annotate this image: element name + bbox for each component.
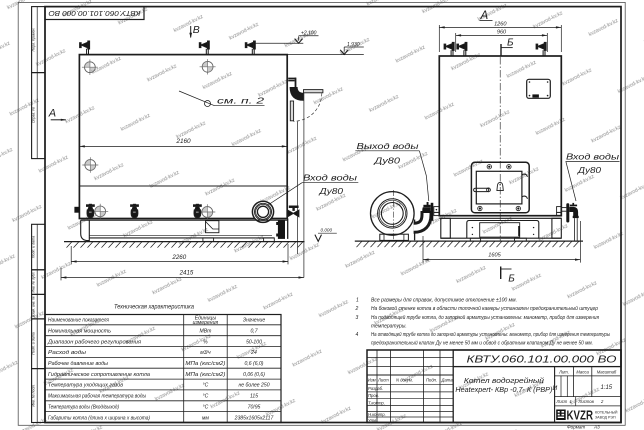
svg-text:1605: 1605	[488, 252, 501, 258]
svg-text:КОТЕЛЬНЫЙ: КОТЕЛЬНЫЙ	[595, 410, 618, 414]
svg-text:Пров.: Пров.	[368, 393, 379, 398]
svg-text:0.000: 0.000	[321, 228, 333, 233]
svg-text:Изм: Изм	[368, 378, 376, 383]
svg-text:N докум.: N докум.	[396, 378, 413, 383]
svg-text:измерения: измерения	[193, 320, 219, 326]
svg-text:2385х1605х2117: 2385х1605х2117	[234, 415, 274, 421]
svg-text:Ду80: Ду80	[577, 165, 601, 175]
svg-text:Б: Б	[507, 37, 514, 48]
svg-text:КВТУ.060.101.00.000 ВО: КВТУ.060.101.00.000 ВО	[48, 9, 140, 18]
svg-text:ЗАВОД РЭП: ЗАВОД РЭП	[595, 415, 616, 419]
svg-text:50-100: 50-100	[246, 339, 262, 345]
svg-text:Максимальная рабочая температу: Максимальная рабочая температура воды	[48, 394, 146, 400]
svg-text:предохранительный клапан Ду не: предохранительный клапан Ду не менее 50 …	[371, 340, 593, 347]
svg-text:1260: 1260	[494, 21, 507, 27]
svg-text:МПа (кгс/см2): МПа (кгс/см2)	[185, 361, 225, 367]
svg-text:Разраб.: Разраб.	[368, 386, 383, 391]
svg-text:Взам. инв. №: Взам. инв. №	[32, 296, 36, 317]
svg-text:Масса: Масса	[576, 370, 589, 375]
svg-text:0,06 (0,6): 0,06 (0,6)	[243, 372, 265, 378]
svg-text:Лист: Лист	[556, 399, 568, 404]
svg-text:В: В	[193, 24, 200, 36]
svg-text:1,930: 1,930	[347, 42, 360, 48]
svg-text:см. п. 2: см. п. 2	[217, 96, 264, 106]
svg-text:960: 960	[497, 29, 507, 35]
svg-text:2160: 2160	[175, 138, 191, 145]
svg-text:температуры.: температуры.	[371, 323, 407, 329]
svg-text:+2,100: +2,100	[301, 31, 317, 37]
svg-text:А: А	[48, 107, 56, 119]
svg-text:Техническая характеристика: Техническая характеристика	[114, 303, 195, 310]
svg-text:Б: Б	[508, 274, 515, 285]
svg-text:Вход воды: Вход воды	[566, 152, 620, 162]
svg-text:Выход воды: Выход воды	[357, 141, 420, 151]
svg-text:Значение: Значение	[243, 318, 266, 324]
svg-text:%: %	[203, 339, 208, 345]
svg-text:Вход воды: Вход воды	[303, 173, 358, 183]
svg-text:24: 24	[250, 350, 257, 356]
svg-text:Ду80: Ду80	[318, 186, 343, 196]
svg-text:Лит.: Лит.	[558, 370, 569, 375]
svg-text:Наименование показателя: Наименование показателя	[48, 318, 109, 324]
svg-text:не более 250: не более 250	[238, 383, 269, 389]
svg-text:Лист: Лист	[377, 378, 389, 383]
svg-text:Перв. примен.: Перв. примен.	[32, 28, 36, 52]
svg-text:2415: 2415	[179, 270, 194, 277]
svg-text:Подп.: Подп.	[426, 378, 437, 383]
svg-text:2: 2	[355, 306, 359, 312]
svg-text:Дата: Дата	[441, 378, 454, 383]
svg-text:мм: мм	[202, 415, 209, 421]
svg-text:Рабочее давление воды: Рабочее давление воды	[48, 361, 108, 367]
svg-text:Номинальная мощность: Номинальная мощность	[48, 329, 111, 335]
svg-text:3: 3	[356, 315, 359, 321]
svg-text:1:15: 1:15	[600, 385, 612, 391]
svg-text:Гидравлическое сопротивление к: Гидравлическое сопротивление котла	[48, 372, 150, 378]
svg-text:Котел водогрейный: Котел водогрейный	[464, 377, 544, 385]
svg-text:Листов: Листов	[578, 399, 595, 404]
svg-text:4: 4	[356, 332, 359, 338]
svg-text:70/95: 70/95	[248, 404, 261, 410]
svg-text:Диапазон рабочего регулировани: Диапазон рабочего регулирования	[47, 339, 141, 345]
svg-text:2260: 2260	[171, 254, 186, 261]
svg-text:Подп. и дата: Подп. и дата	[32, 236, 36, 259]
svg-text:115: 115	[250, 394, 258, 400]
svg-text:0,7: 0,7	[250, 329, 257, 335]
svg-text:Справ. №: Справ. №	[32, 107, 36, 123]
svg-text:На подводящей трубе котла, до: На подводящей трубе котла, до запорной а…	[371, 314, 599, 321]
svg-text:На отводящей трубе котла до за: На отводящей трубе котла до запорной арм…	[371, 331, 610, 338]
svg-text:Расход воды: Расход воды	[48, 350, 86, 356]
svg-text:1: 1	[570, 399, 572, 404]
svg-text:м3/ч: м3/ч	[200, 350, 211, 356]
svg-text:KVZR: KVZR	[567, 409, 594, 423]
svg-text:И: И	[552, 385, 557, 392]
svg-text:Подп. и дата: Подп. и дата	[32, 332, 36, 355]
svg-text:А: А	[480, 10, 489, 22]
svg-text:Утв.: Утв.	[368, 418, 378, 423]
svg-text:Инв. № подл.: Инв. № подл.	[32, 384, 36, 406]
svg-text:°С: °С	[203, 383, 209, 389]
svg-text:Heatexpert- КВр -0,7- К (РВР): Heatexpert- КВр -0,7- К (РВР)	[455, 387, 552, 394]
svg-text:Н.контр.: Н.контр.	[368, 412, 386, 417]
svg-text:КВТУ.060.101.00.000 ВО: КВТУ.060.101.00.000 ВО	[467, 354, 617, 366]
svg-text:МПа (кгс/см2): МПа (кгс/см2)	[185, 372, 225, 378]
svg-text:0,6 (6,0): 0,6 (6,0)	[245, 361, 264, 367]
svg-text:А3: А3	[593, 425, 600, 430]
svg-text:°С: °С	[203, 394, 209, 400]
svg-text:Температура воды (Вход/выход): Температура воды (Вход/выход)	[48, 404, 119, 410]
svg-text:Температура уходящих газов: Температура уходящих газов	[48, 383, 123, 389]
svg-text:Масштаб: Масштаб	[597, 370, 617, 375]
svg-text:Инв. № дубл.: Инв. № дубл.	[32, 272, 36, 293]
svg-text:Ду80: Ду80	[373, 156, 400, 166]
svg-text:Габариты котла (длина х ширина: Габариты котла (длина х ширина х высота)	[48, 415, 150, 421]
svg-text:Т.контр.: Т.контр.	[368, 400, 385, 405]
svg-text:МВт: МВт	[199, 329, 211, 335]
svg-text:На боковой стенке котла в обла: На боковой стенке котла в области топочн…	[371, 305, 598, 312]
svg-text:1: 1	[356, 298, 359, 304]
svg-text:Все размеры для справок, допус: Все размеры для справок, допустимое откл…	[371, 298, 517, 304]
svg-text:°С: °С	[203, 404, 209, 410]
svg-text:Формат: Формат	[567, 425, 585, 430]
